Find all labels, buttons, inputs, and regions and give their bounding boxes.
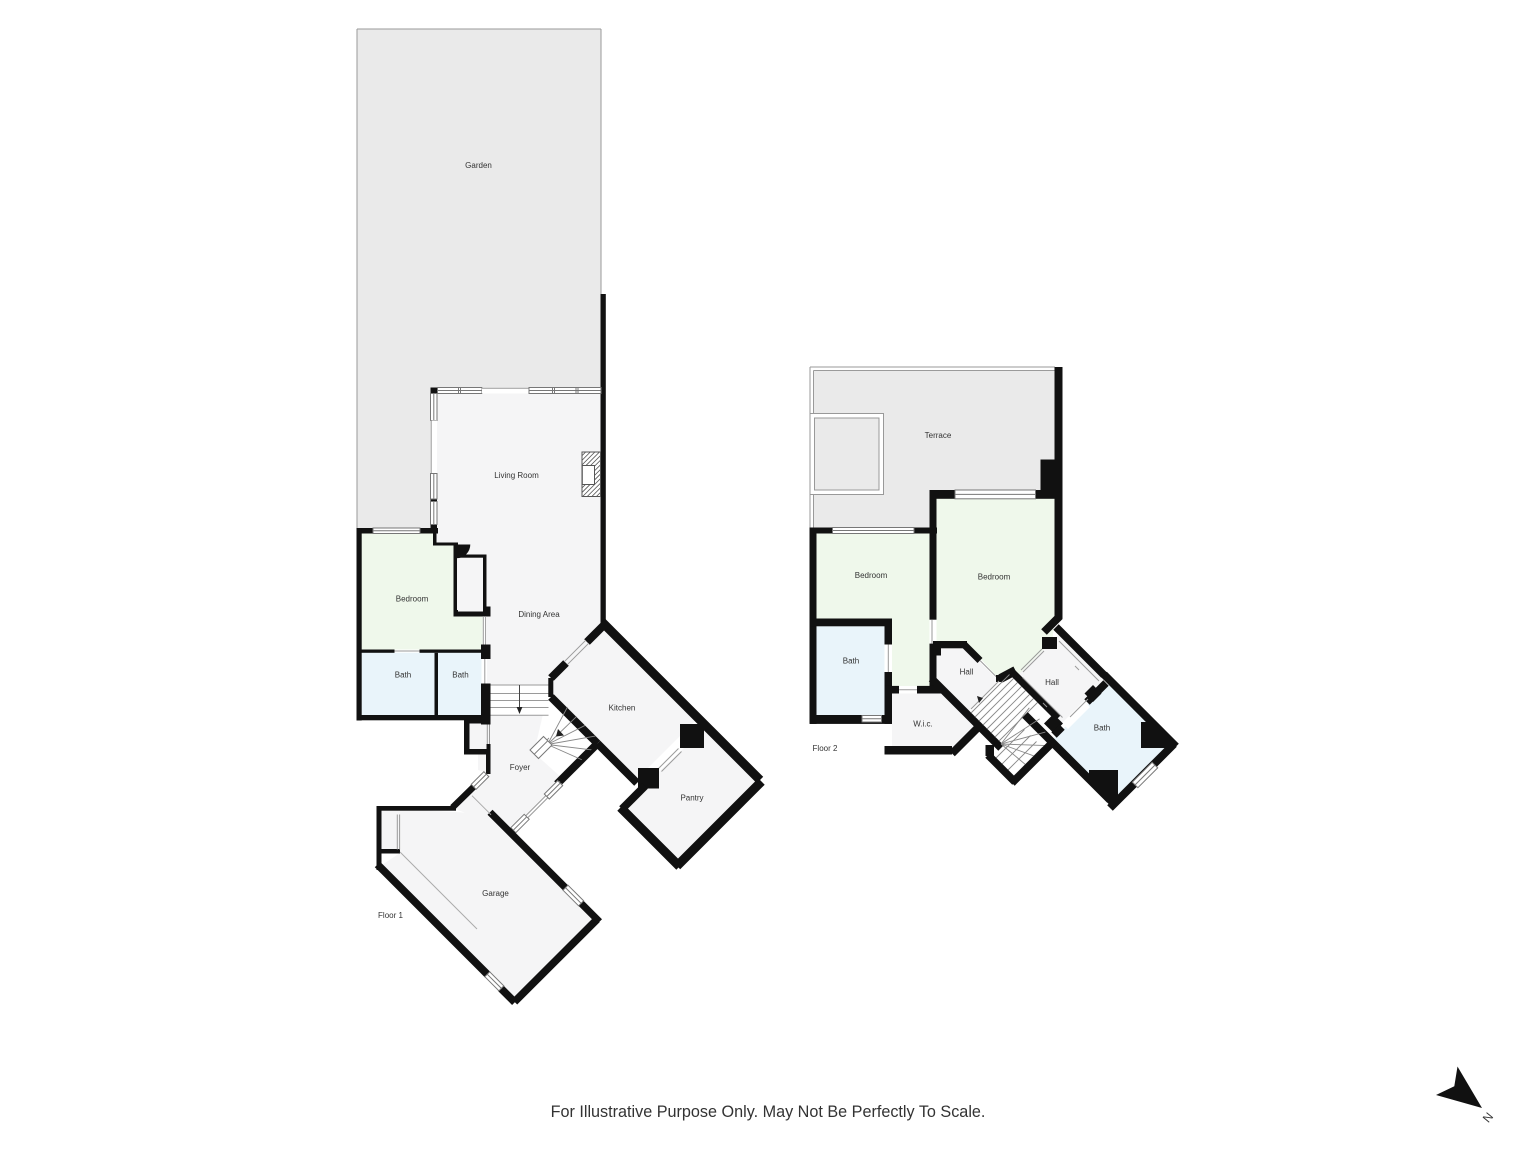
svg-text:Hall: Hall [1045,678,1059,687]
svg-text:For Illustrative Purpose Only.: For Illustrative Purpose Only. May Not B… [551,1103,986,1121]
svg-text:Floor 2: Floor 2 [813,744,838,753]
svg-text:Dining Area: Dining Area [518,610,560,619]
svg-text:W.i.c.: W.i.c. [913,720,933,729]
svg-text:Garage: Garage [482,889,509,898]
svg-text:Hall: Hall [960,668,974,677]
svg-text:Living Room: Living Room [494,471,539,480]
svg-text:Garden: Garden [465,161,492,170]
svg-text:Bedroom: Bedroom [855,571,888,580]
svg-text:Terrace: Terrace [925,431,952,440]
svg-text:Bath: Bath [395,671,411,680]
svg-text:Pantry: Pantry [680,794,703,803]
svg-text:Bedroom: Bedroom [396,595,429,604]
svg-text:Bath: Bath [1094,724,1110,733]
svg-text:Bedroom: Bedroom [978,573,1011,582]
svg-text:Bath: Bath [843,657,859,666]
svg-text:Kitchen: Kitchen [609,704,636,713]
svg-text:Foyer: Foyer [510,763,531,772]
svg-text:Bath: Bath [452,671,468,680]
svg-text:Floor 1: Floor 1 [378,911,403,920]
